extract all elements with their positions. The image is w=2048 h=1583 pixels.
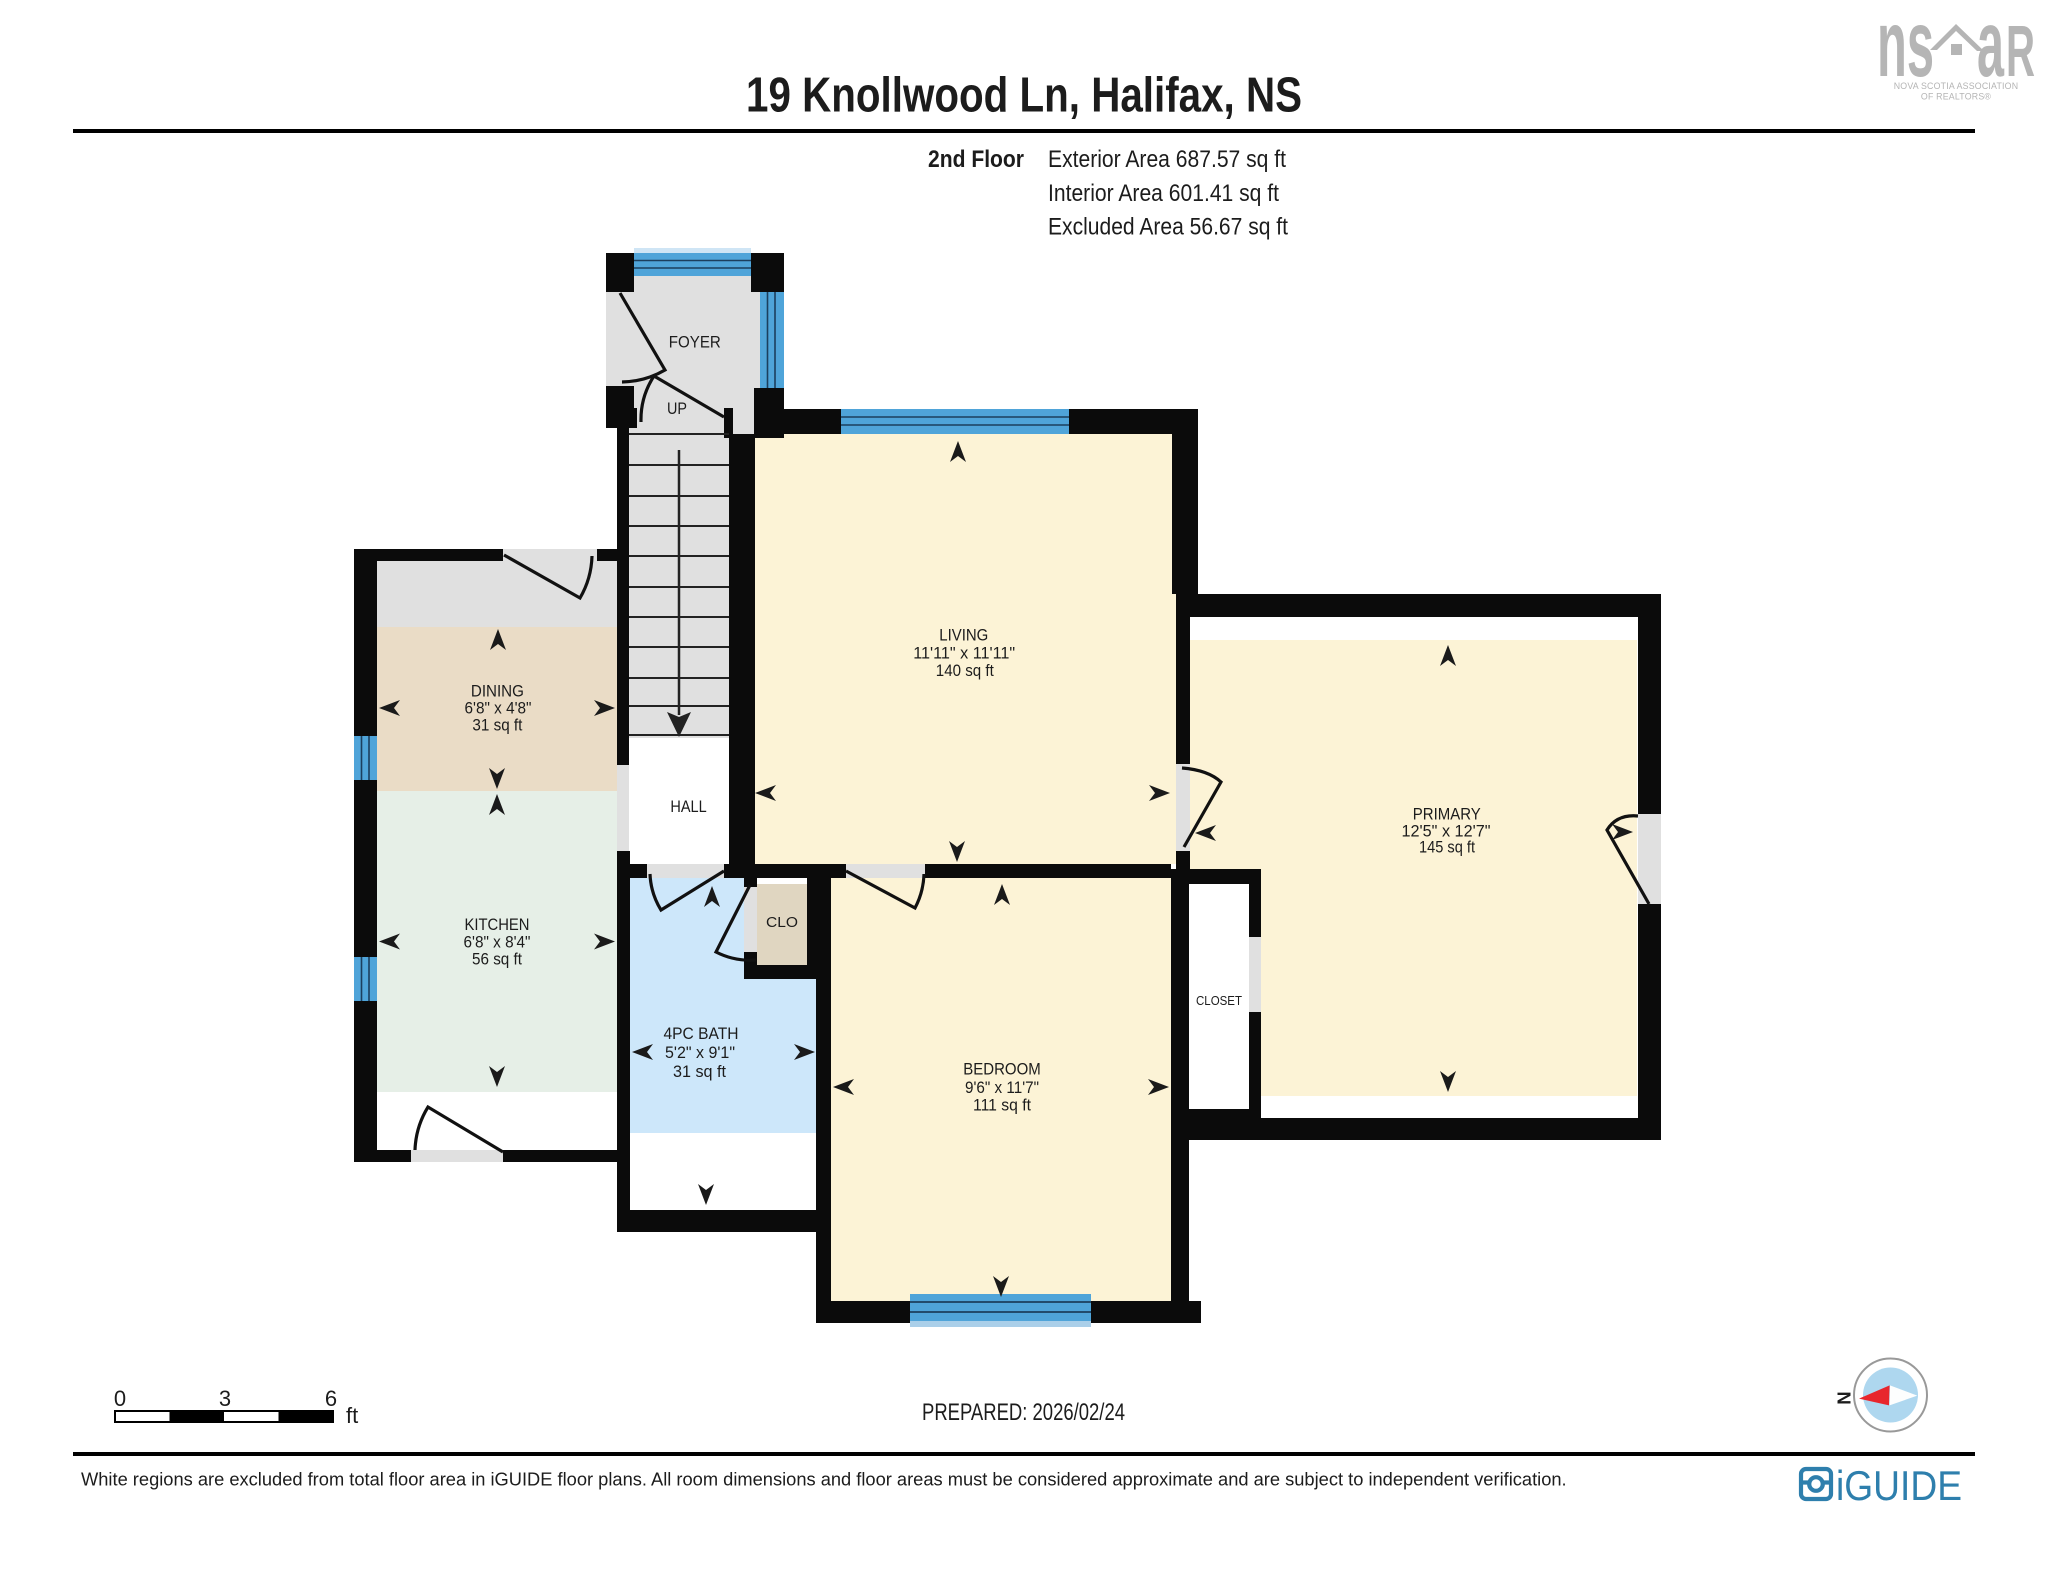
svg-text:3: 3 xyxy=(219,1386,231,1411)
svg-text:N: N xyxy=(1834,1391,1855,1404)
svg-text:31 sq ft: 31 sq ft xyxy=(673,1063,726,1081)
svg-text:OF REALTORS®: OF REALTORS® xyxy=(1921,92,1991,102)
svg-text:140 sq ft: 140 sq ft xyxy=(936,662,994,680)
svg-text:R: R xyxy=(2006,12,2035,92)
svg-text:6'8" x 8'4": 6'8" x 8'4" xyxy=(464,934,531,952)
svg-text:White regions are excluded fro: White regions are excluded from total fl… xyxy=(81,1469,1567,1490)
svg-text:Exterior Area 687.57 sq ft: Exterior Area 687.57 sq ft xyxy=(1048,146,1286,173)
svg-text:111 sq ft: 111 sq ft xyxy=(973,1097,1031,1115)
svg-text:CLOSET: CLOSET xyxy=(1196,994,1242,1008)
svg-text:31 sq ft: 31 sq ft xyxy=(472,717,522,735)
svg-text:5'2" x 9'1": 5'2" x 9'1" xyxy=(665,1044,735,1062)
svg-text:145 sq ft: 145 sq ft xyxy=(1419,839,1475,857)
svg-text:12'5" x 12'7": 12'5" x 12'7" xyxy=(1402,822,1491,840)
svg-text:LIVING: LIVING xyxy=(939,626,988,644)
svg-text:19 Knollwood Ln, Halifax, NS: 19 Knollwood Ln, Halifax, NS xyxy=(746,69,1302,123)
svg-text:6: 6 xyxy=(325,1386,337,1411)
svg-text:FOYER: FOYER xyxy=(669,334,721,352)
svg-text:KITCHEN: KITCHEN xyxy=(465,916,530,934)
svg-text:4PC BATH: 4PC BATH xyxy=(664,1025,739,1043)
svg-text:BEDROOM: BEDROOM xyxy=(963,1061,1041,1079)
svg-text:ft: ft xyxy=(346,1403,358,1428)
svg-text:11'11" x 11'11": 11'11" x 11'11" xyxy=(913,645,1015,663)
svg-text:iGUIDE: iGUIDE xyxy=(1836,1462,1962,1509)
svg-text:PRIMARY: PRIMARY xyxy=(1413,805,1481,823)
svg-text:UP: UP xyxy=(667,400,687,418)
svg-text:2nd Floor: 2nd Floor xyxy=(928,146,1024,173)
svg-text:PREPARED: 2026/02/24: PREPARED: 2026/02/24 xyxy=(922,1399,1125,1426)
svg-text:DINING: DINING xyxy=(471,683,524,701)
svg-text:HALL: HALL xyxy=(670,798,706,816)
svg-text:6'8" x 4'8": 6'8" x 4'8" xyxy=(465,700,532,718)
svg-text:0: 0 xyxy=(114,1386,126,1411)
svg-text:Interior Area 601.41 sq ft: Interior Area 601.41 sq ft xyxy=(1048,180,1279,207)
svg-text:56 sq ft: 56 sq ft xyxy=(472,951,522,969)
svg-text:CLO: CLO xyxy=(766,915,798,931)
svg-text:Excluded Area 56.67 sq ft: Excluded Area 56.67 sq ft xyxy=(1048,213,1288,240)
svg-text:9'6" x 11'7": 9'6" x 11'7" xyxy=(965,1079,1039,1097)
svg-text:NOVA SCOTIA ASSOCIATION: NOVA SCOTIA ASSOCIATION xyxy=(1894,81,2019,91)
